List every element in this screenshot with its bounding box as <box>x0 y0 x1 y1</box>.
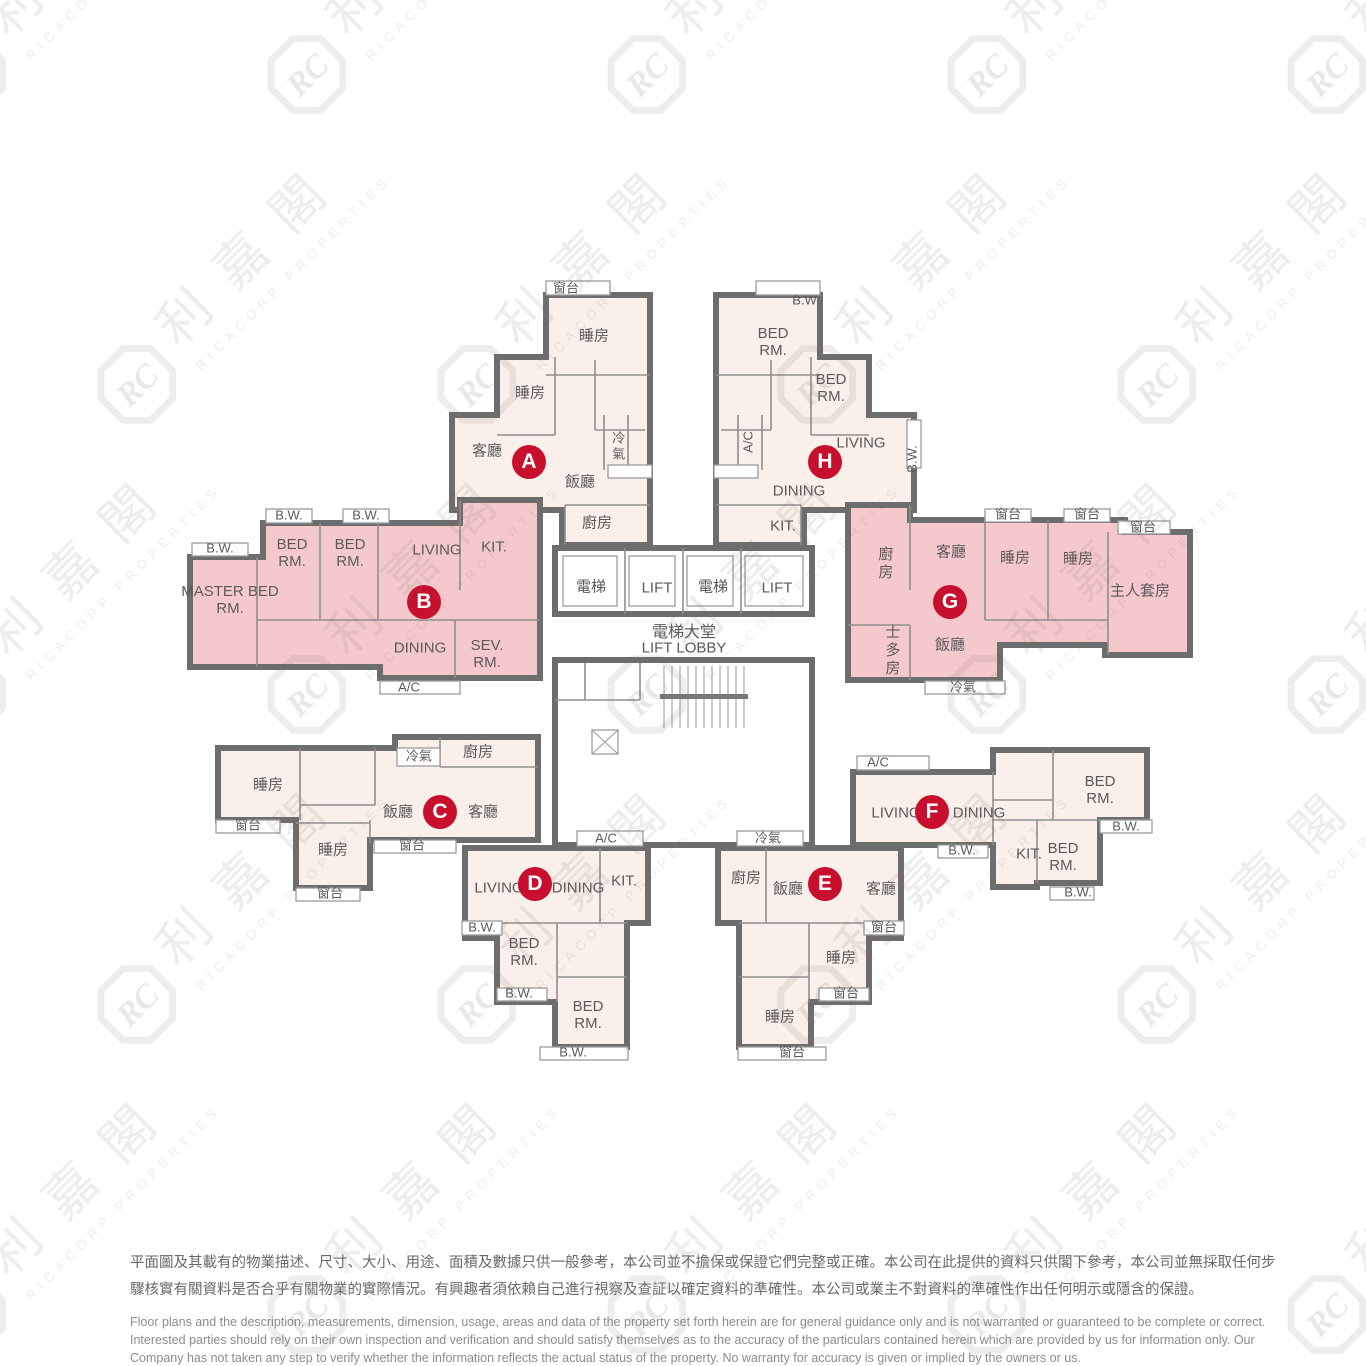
unit-b-ac-label: A/C <box>398 681 420 696</box>
unit-h-bw2-label: B.W. <box>906 445 921 472</box>
unit-b-master-label: MASTER BED RM. <box>181 584 280 618</box>
unit-f-bw2-label: B.W. <box>948 844 975 859</box>
unit-e-bay1-label: 窗台 <box>871 921 897 936</box>
disclaimer: 平面圖及其載有的物業描述、尺寸、大小、用途、面積及數據只供一般參考，本公司並不擔… <box>130 1250 1246 1366</box>
unit-g-badge: G <box>933 585 967 619</box>
unit-c-kitchen-label: 廚房 <box>463 745 493 762</box>
unit-c-bay3-label: 窗台 <box>399 839 425 854</box>
disclaimer-en-line1: Floor plans and the description, measure… <box>130 1313 1246 1331</box>
unit-g-store-label: 士多房 <box>883 624 900 678</box>
unit-f-bed1-label: BED RM. <box>1076 774 1124 808</box>
unit-a-bay-label: 窗台 <box>553 282 579 297</box>
floor-plan-page: 窗台 睡房 睡房 客廳 A 飯廳 冷氣 廚房 B.W. BED RM. BED … <box>0 0 1366 1366</box>
unit-d-kitchen-label: KIT. <box>611 874 637 891</box>
unit-b-living-label: LIVING <box>412 543 461 560</box>
unit-e-bed2-label: 睡房 <box>765 1010 795 1027</box>
unit-c-bed1-label: 睡房 <box>253 778 283 795</box>
unit-e-bay3-label: 窗台 <box>779 1046 805 1061</box>
unit-c-bay2-label: 窗台 <box>317 887 343 902</box>
unit-c-bay1-label: 窗台 <box>235 819 261 834</box>
unit-c-badge: C <box>423 795 457 829</box>
unit-c-ac-label: 冷氣 <box>406 750 432 765</box>
unit-b-bw3-label: B.W. <box>206 542 233 557</box>
unit-f-bw3-label: B.W. <box>1064 886 1091 901</box>
unit-f-ac-label: A/C <box>867 756 889 771</box>
unit-b-badge: B <box>407 585 441 619</box>
unit-h-bed2-label: BED RM. <box>807 372 855 406</box>
unit-d-bw3-label: B.W. <box>559 1046 586 1061</box>
unit-a-badge: A <box>512 445 546 479</box>
disclaimer-zh-line1: 平面圖及其載有的物業描述、尺寸、大小、用途、面積及數據只供一般參考，本公司並不擔… <box>130 1250 1246 1277</box>
unit-g-dining-label: 飯廳 <box>935 638 965 655</box>
unit-a-bed2-label: 睡房 <box>515 386 545 403</box>
unit-h-kitchen-label: KIT. <box>770 519 796 536</box>
unit-h-dining-label: DINING <box>773 484 826 501</box>
lift-3-label: 電梯 <box>698 580 728 597</box>
unit-a-dining-label: 飯廳 <box>565 475 595 492</box>
unit-d-badge: D <box>518 867 552 901</box>
unit-a-bed1-label: 睡房 <box>579 329 609 346</box>
disclaimer-en-line3: Company has not taken any step to verify… <box>130 1349 1246 1366</box>
unit-g-bay3-label: 窗台 <box>1130 521 1156 536</box>
unit-g-kitchen-label: 廚房 <box>876 546 893 582</box>
unit-g-bed2-label: 睡房 <box>1063 552 1093 569</box>
lift-2-label: LIFT <box>642 581 673 598</box>
unit-a-living-label: 客廳 <box>472 444 502 461</box>
unit-g-bed1-label: 睡房 <box>1000 551 1030 568</box>
unit-b-kitchen-label: KIT. <box>481 540 507 557</box>
unit-b-bed1-label: BED RM. <box>268 537 316 571</box>
unit-b-bw1-label: B.W. <box>275 509 302 524</box>
unit-h-badge: H <box>808 445 842 479</box>
unit-d-bed2-label: BED RM. <box>564 999 612 1033</box>
unit-f-bed2-label: BED RM. <box>1039 841 1087 875</box>
unit-a-kitchen-label: 廚房 <box>582 516 612 533</box>
unit-f-living-label: LIVING <box>871 806 920 823</box>
unit-c-dining-label: 飯廳 <box>383 805 413 822</box>
core-cold-label: 冷氣 <box>755 832 781 847</box>
unit-d-living-label: LIVING <box>474 881 523 898</box>
core-ac-label: A/C <box>595 832 617 847</box>
unit-f-badge: F <box>915 795 949 829</box>
unit-g-bay2-label: 窗台 <box>1074 508 1100 523</box>
lift-lobby-label-en: LIFT LOBBY <box>642 641 727 658</box>
unit-b-bed2-label: BED RM. <box>326 537 374 571</box>
room-labels-layer: 窗台 睡房 睡房 客廳 A 飯廳 冷氣 廚房 B.W. BED RM. BED … <box>0 0 1366 1366</box>
unit-g-living-label: 客廳 <box>936 545 966 562</box>
lift-1-label: 電梯 <box>576 580 606 597</box>
unit-c-living-label: 客廳 <box>468 805 498 822</box>
unit-d-bed1-label: BED RM. <box>500 936 548 970</box>
unit-a-ac-label: 冷氣 <box>610 431 625 463</box>
unit-g-bay1-label: 窗台 <box>995 508 1021 523</box>
unit-b-dining-label: DINING <box>394 641 447 658</box>
unit-e-badge: E <box>808 867 842 901</box>
lift-4-label: LIFT <box>762 581 793 598</box>
unit-e-bed1-label: 睡房 <box>826 951 856 968</box>
unit-d-dining-label: DINING <box>552 881 605 898</box>
unit-b-bw2-label: B.W. <box>352 509 379 524</box>
unit-b-service-label: SEV. RM. <box>463 638 511 672</box>
unit-g-master-label: 主人套房 <box>1110 584 1170 601</box>
unit-f-dining-label: DINING <box>953 806 1006 823</box>
unit-e-dining-label: 飯廳 <box>773 882 803 899</box>
disclaimer-zh-line2: 驟核實有關資料是否合乎有關物業的實際情況。有興趣者須依賴自己進行視察及查証以確定… <box>130 1277 1246 1304</box>
unit-h-bed1-label: BED RM. <box>749 326 797 360</box>
unit-c-bed2-label: 睡房 <box>318 843 348 860</box>
disclaimer-en-line2: Interested parties should rely on their … <box>130 1331 1246 1349</box>
unit-f-bw1-label: B.W. <box>1112 820 1139 835</box>
unit-d-bw2-label: B.W. <box>505 987 532 1002</box>
unit-e-bay2-label: 窗台 <box>833 987 859 1002</box>
unit-e-living-label: 客廳 <box>866 882 896 899</box>
unit-e-kitchen-label: 廚房 <box>731 871 761 888</box>
unit-h-ac-label: A/C <box>742 431 757 453</box>
unit-d-bw1-label: B.W. <box>468 921 495 936</box>
unit-h-bw1-label: B.W. <box>792 294 819 309</box>
unit-h-living-label: LIVING <box>836 436 885 453</box>
unit-g-ac-label: 冷氣 <box>950 681 976 696</box>
